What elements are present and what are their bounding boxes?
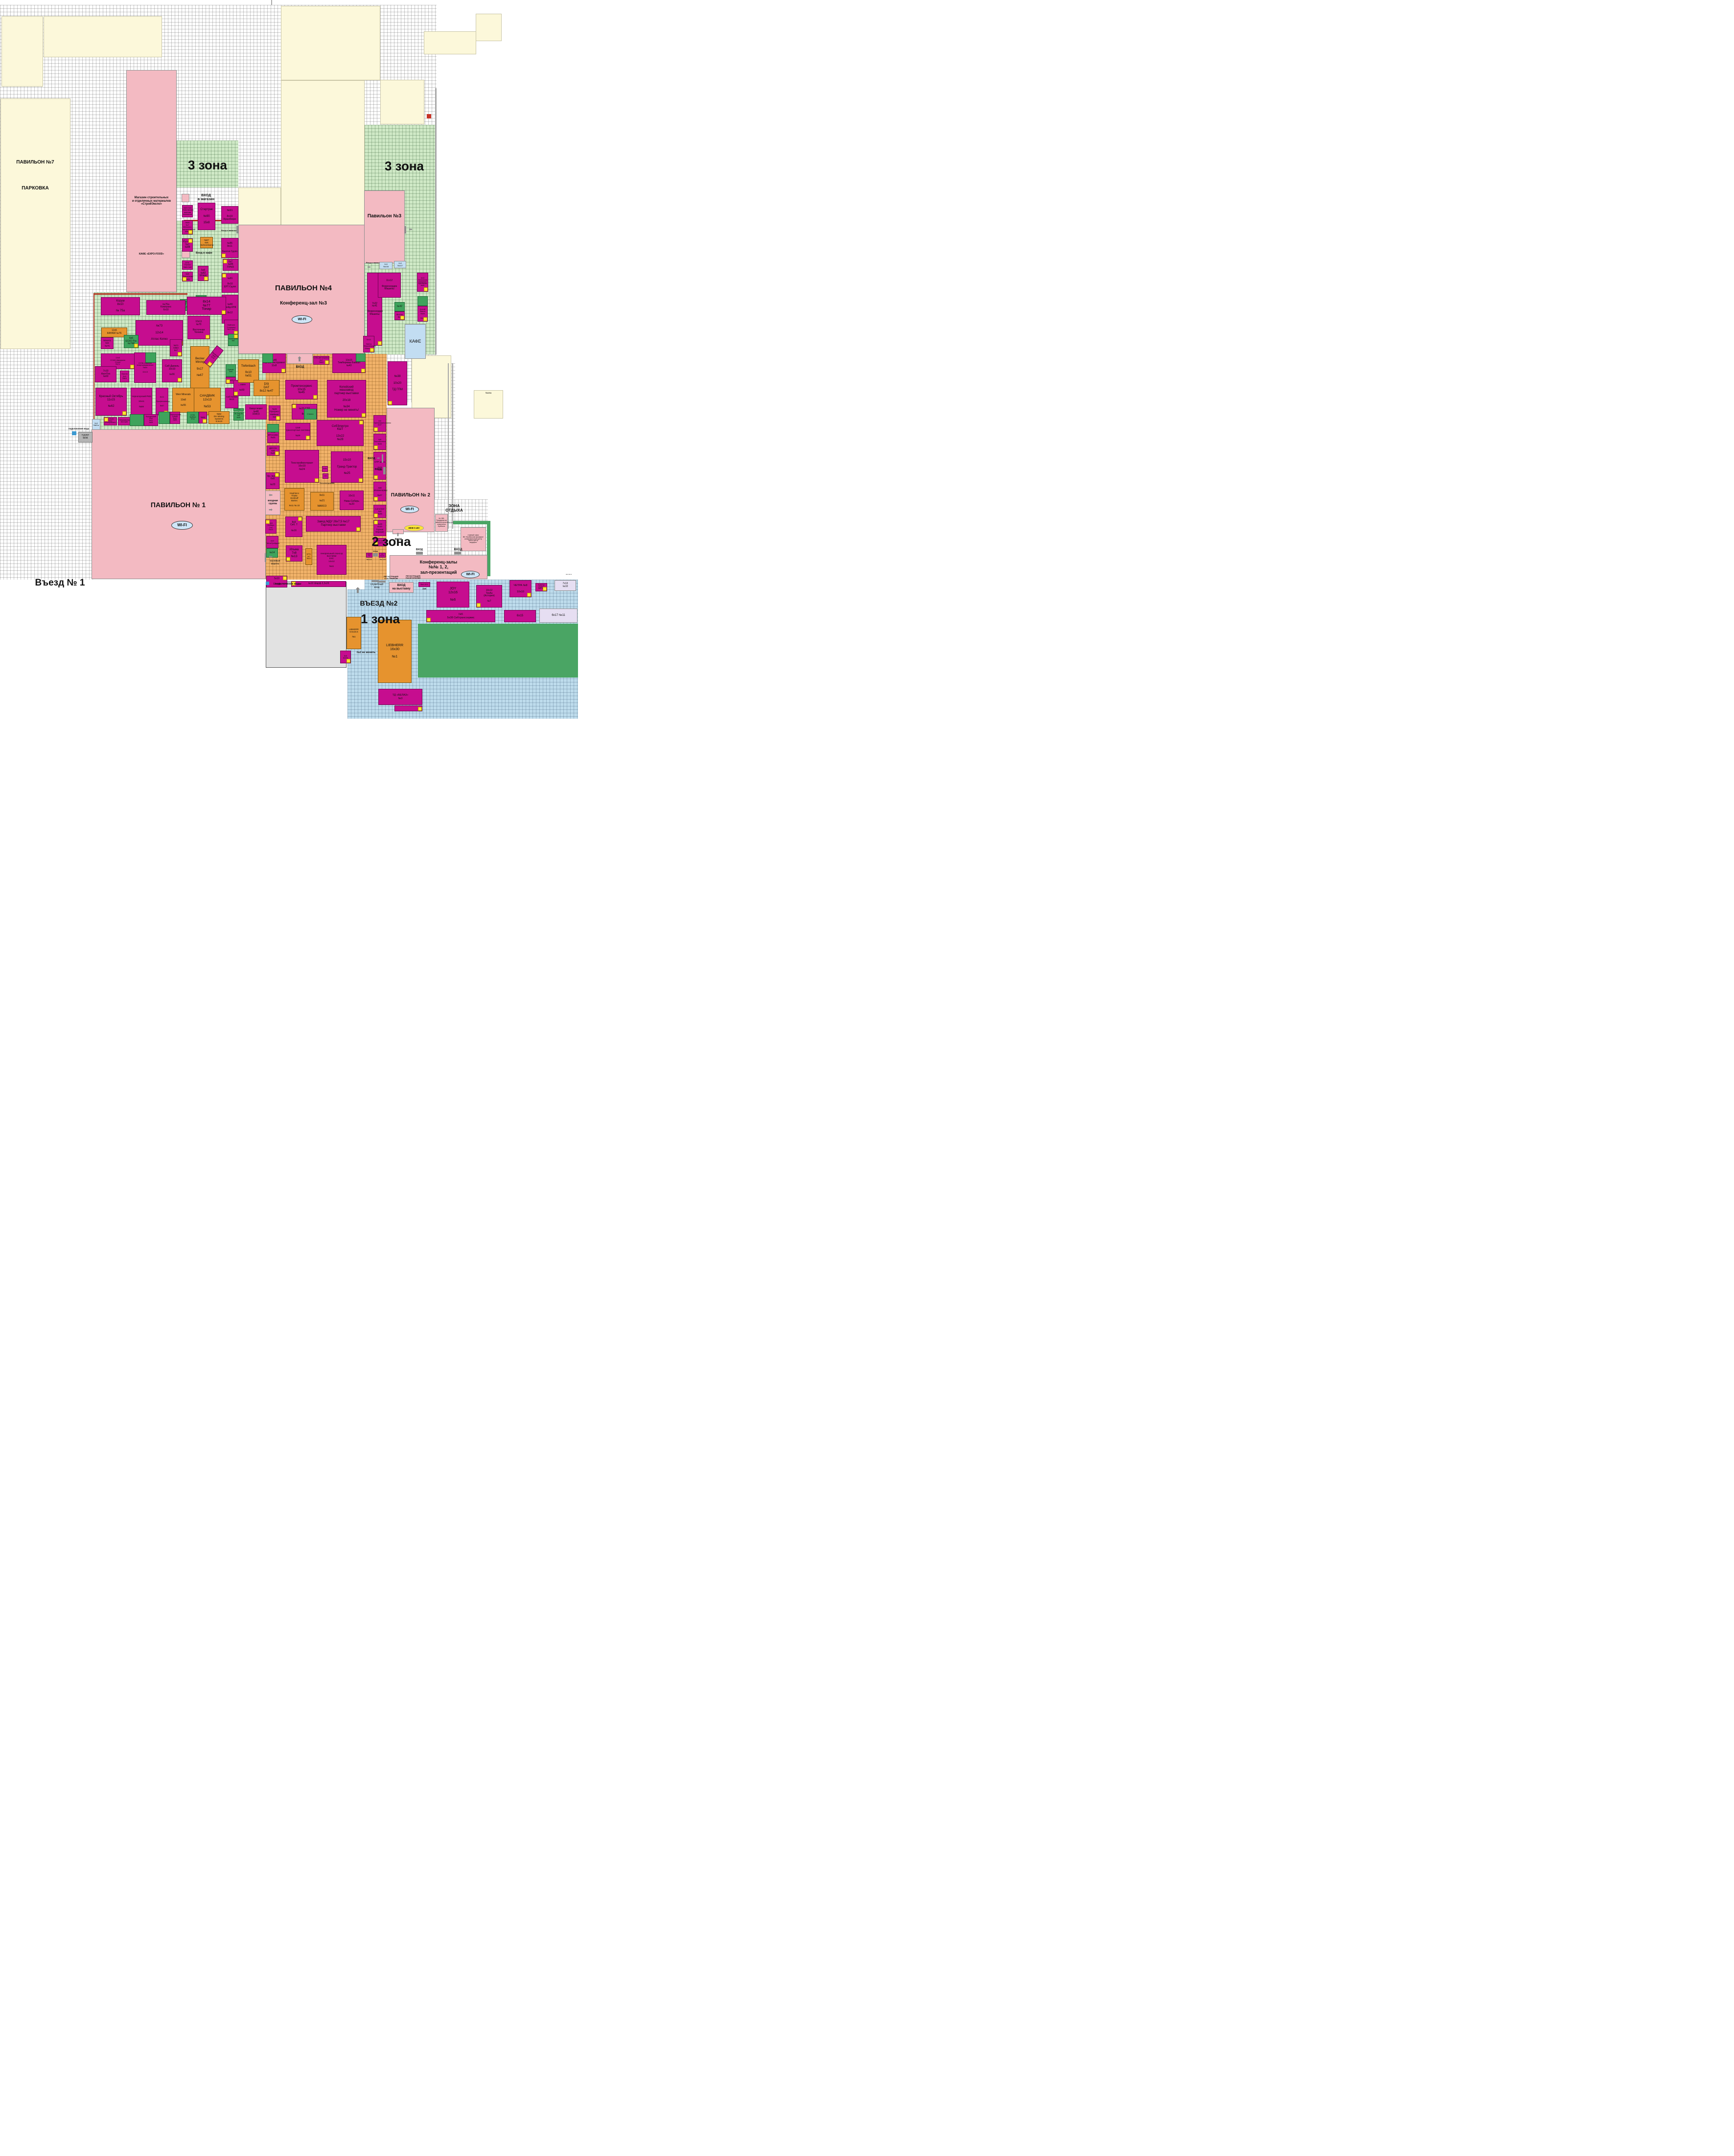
booth-48: Химуглемет №48 10x8,5	[245, 404, 267, 420]
tick-top	[271, 0, 272, 5]
booth-belaz-strip	[394, 705, 422, 711]
booth-84: АГМ-Сервис №84 5x5	[182, 260, 193, 270]
arrow-gruzovye: ⬅	[266, 554, 275, 559]
label-pavilion7: ПАВИЛЬОН №7	[9, 159, 62, 166]
booth-58: Бородинский РМЗ 5x11 №58	[144, 414, 158, 426]
booth-33-steklo: Стекло	[304, 409, 317, 420]
booth-6x15: 6x15	[504, 610, 536, 622]
booth-28: СибЭлектро КШТ 13x22 №28	[317, 420, 364, 446]
booth-42: Фотон 5x8	[394, 311, 405, 320]
booth-24a: №24а	[322, 466, 328, 472]
booth-17: Завод МДУ 26x7,5 №17 Партнер выставки	[306, 516, 361, 532]
booth-11: генеральный спонсор выставки ЕХС 14x12 №…	[317, 545, 347, 575]
label-vhod-pav2w: ВХОД	[373, 468, 384, 471]
booth-5: №5 5x38 Сибтранссервис	[426, 610, 495, 622]
booth-74a: 6x6 ЕСКО Рус №74А	[124, 335, 139, 348]
label-vezd1: Въезд № 1	[24, 577, 95, 589]
booth-87: №87 6x6 Bohnenkamp	[200, 237, 213, 248]
cream-left-pav4	[238, 187, 281, 225]
main-office: главный офис ВК «Кузбасская ярмарка» коп…	[461, 527, 486, 551]
booth-6: JOY 12x16 №6	[437, 582, 469, 608]
green-bar-h	[453, 521, 490, 524]
booth-91: №91 8x10 Кранбюро	[221, 206, 238, 224]
booth-58-green	[130, 414, 144, 426]
booth-46-green	[262, 353, 273, 363]
arrow-pav3-bottom: ⬅	[365, 265, 373, 269]
booth-41a: 5x10 №41а Ферронордик Машины	[363, 336, 374, 352]
booth-63: 7x10 АзотТех №63	[95, 366, 116, 382]
label-zone3-left: 3 зона	[180, 157, 235, 174]
label-vezd2: ВЪЕЗД №2	[349, 599, 408, 608]
booth-75: Макита 5x5 №75	[101, 337, 114, 349]
red-square	[427, 114, 431, 118]
cafe-east: КАФЕ	[405, 324, 426, 359]
booth-21: 9x11 №21 MARCO	[310, 492, 334, 511]
booth-72: Майнинг Солюшнс №72 6x7	[224, 320, 238, 335]
pavilion3	[364, 190, 405, 263]
cream-right-1	[380, 80, 424, 124]
booth-14: 6x9 МегаТрейдинг	[266, 536, 278, 548]
label-conf3: Конференц-зал №3	[259, 300, 347, 306]
wifi-pav2: WI-FI	[400, 506, 419, 513]
booth-65-green	[145, 352, 156, 363]
booth-64: Лиотех 4x4 №64	[120, 371, 129, 382]
label-2x6: 2x6	[418, 587, 430, 590]
pavilion7	[0, 98, 70, 349]
dots: • • • •	[559, 574, 578, 577]
power-380v: 380В 5 кВт	[404, 525, 424, 531]
booth-56-green	[159, 412, 170, 424]
booth-37: 4x6 Орелкомпрессормаш №37	[373, 415, 386, 432]
booth-66: Сиб-Дамель 10x10 №66	[162, 359, 182, 382]
label-vhod-asi: вход	[372, 550, 379, 553]
booth-88: Русторг 5x7 №88	[182, 238, 193, 252]
booth-shina-2: 5x6 Шина	[340, 651, 351, 663]
label-gruzovye: грузовые ворота	[267, 560, 283, 566]
booth-8: ЧЕТРА №8 10x10	[509, 580, 532, 597]
booth-81: №81 8x10 ЕРТ-Групп	[222, 273, 238, 293]
cream-top-center	[281, 6, 380, 80]
booth-49-strip: 1,5x3	[233, 408, 244, 411]
booth-76a: №76а Комтранс 6x10	[146, 300, 185, 315]
redline-v	[93, 293, 94, 430]
booth-82: 5x8 №82 Штарк	[198, 266, 208, 281]
booth-85: 6x7 №85 ПРМЗ	[223, 259, 238, 271]
label-vhod-rest1: ВХОД	[414, 548, 425, 552]
door-sluzhebny	[377, 581, 386, 583]
booth-31-green	[267, 424, 279, 432]
label-16a: №16а	[474, 392, 503, 395]
label-vhod-shop: ВХОД в магазин	[191, 193, 221, 202]
booth-13: Ильма 7x8 №13	[286, 545, 302, 562]
door-asi	[373, 553, 378, 557]
redline-h	[94, 293, 187, 295]
booth-12: MTU 3x7 №12	[305, 548, 312, 565]
label-expo-food: КАФЕ «EXPO-FOOD»	[127, 253, 176, 257]
booth-asi: АСИ 3x2	[366, 553, 372, 558]
arrow-vhod-pav2s: ⬆	[394, 532, 401, 538]
booth-29: 12x8 транспортные системы №29	[285, 423, 310, 440]
booth-45: Промтехсервис 10x15 №45	[285, 380, 318, 399]
wifi-conf: WI-FI	[461, 571, 480, 578]
bsq-voda	[72, 431, 76, 435]
booth-40: 4x10 Технологии Анкерного Крепления №40	[417, 273, 428, 292]
booth-26: Сателлит 4x8 №26	[373, 505, 386, 518]
arrow-entrance-group-right: ➡	[266, 507, 275, 512]
booth-belaz: ТД «БЕЛАЗ» №3	[378, 689, 422, 705]
booth-granit: Гранит 5x8	[226, 364, 236, 377]
booth-4-joy: №4 JOY	[418, 582, 430, 587]
label-reg-uchastnikov: РЕГИСТРАЦИЯ УЧАСТНИКОВ	[381, 575, 401, 581]
booth-107: 2x3 №107	[394, 261, 406, 268]
booth-39-green	[417, 296, 428, 306]
booth-spgroup: СП Групп	[379, 553, 386, 558]
booth-59: Черногорский РМЗ 10x11 №59	[131, 388, 152, 415]
booth-42-green: №42	[394, 302, 405, 311]
label-vhod-pav2s: ВХОД	[393, 538, 403, 541]
booth-93: №93 5x5 Поволжская шинная компания	[182, 205, 193, 217]
label-pavilion3: Павильон №3	[365, 213, 404, 219]
wifi-pav1: WI-FI	[171, 521, 193, 530]
booth-67: Becker Mining 9x17 №67	[190, 346, 209, 389]
label-pavilion4: ПАВИЛЬОН №4	[259, 284, 347, 293]
booth-38: №38 10x20 ТД ГПМ	[388, 361, 407, 405]
booth-10-lav: 7x13 №10	[555, 580, 576, 591]
booth-71: №71 АКВА 6x7	[170, 339, 182, 356]
booth-62: Красный Октябрь 11x15 №62	[95, 388, 127, 416]
bsq-vody	[266, 582, 269, 585]
label-pavilion2: ПАВИЛЬОН № 2	[388, 492, 434, 498]
booth-60: Петромастер 5x3 №60	[118, 417, 131, 425]
booth-55: Weir Minerals 10x8 №55	[172, 388, 194, 413]
label-stroyexpo: Магазин строительных и отделочных матери…	[127, 194, 176, 209]
door-shop	[182, 194, 189, 202]
stroyexpo	[126, 70, 177, 292]
booth-56: Черногорские ЦЭММ 6x10 №56	[170, 412, 180, 424]
booth-32: №32 Прогресс Майнинг 5x8	[269, 405, 280, 421]
booth-47: DSI DAT 8x12 №47	[254, 380, 279, 396]
label-zone2: 2 зона	[356, 534, 427, 550]
green-bar-v	[487, 524, 490, 576]
booth-54: №54	[199, 412, 207, 423]
label-rest-area: ЗОНА ОТДЫХА	[439, 503, 470, 514]
booth-89: №89 5x7 Металло- механический завод	[182, 220, 193, 234]
booth-54-green: СУЭК-Кузбасс 5*10	[187, 412, 199, 423]
cream-right-2	[424, 31, 476, 54]
booth-22: Hauhinco Thiele Eickhoff Bartec 9x11 № 2…	[284, 488, 304, 511]
booth-108: 2x3 №108	[379, 262, 393, 269]
label-parkovka: ПАРКОВКА	[9, 185, 62, 192]
booth-24: Техстройконтракт 16x10 №24	[285, 450, 319, 483]
booth-20: 10x11 Нива-Сибирь №20	[340, 491, 364, 510]
label-sluzhebny: служебный вход	[367, 583, 387, 589]
floorplan: №16аКонференц-залы №№ 1, 2, зал-презента…	[0, 0, 578, 719]
booth-35: ОТР шина 4x11 №35	[373, 452, 386, 480]
booth-51: Tiefenbach 9x10 №51	[238, 359, 259, 383]
label-no2: №2 не менять	[351, 651, 381, 655]
service-gray-block	[266, 582, 347, 668]
booth-27: 4x8 Инкомсервис №27	[373, 482, 386, 501]
booth-77: 8x14 №77 Тонар	[187, 297, 226, 315]
door-vhod-east	[382, 454, 383, 463]
label-11a: №11А	[364, 559, 374, 561]
booth-70: 10x11 №70 Восточная Техника	[187, 316, 210, 339]
label-podkl-vody: подключение воды	[270, 582, 307, 586]
arrow-vezd2: ⬆	[354, 586, 361, 596]
cream-1	[1, 16, 43, 87]
booth-ferronordik-11x12: 11x12 Ферронордик Машины	[378, 273, 401, 298]
wifi-pav4: WI-FI	[292, 315, 312, 324]
booth-liebherr: LIEBHERR 16x30 №1	[378, 620, 412, 683]
label-zone1: 1 зона	[348, 611, 412, 628]
booth-75a: Корум 8x10 № 75а	[101, 297, 140, 315]
booth-36: 4x6 ТехноКолесо №36	[373, 434, 386, 450]
booth-24b: 2x4	[323, 473, 328, 479]
booth-52: №52 DH Mining Systems 5,5x10	[208, 411, 230, 424]
label-11b: № 11Б	[378, 559, 388, 561]
wall-right-upper	[435, 88, 437, 354]
label-vhod-rest2: ВХОД	[452, 548, 464, 552]
label-podkl-voda: подключение вода	[64, 427, 94, 430]
green-field	[418, 624, 578, 678]
arrow-entrance-group-left: ⬅	[266, 492, 275, 497]
booth-15: ЧКЗ Сибирь 2x6 №15	[265, 519, 277, 534]
pavilion2	[387, 408, 435, 532]
booth-49: Эс Энд Эн 5x5 №49	[233, 412, 244, 421]
door-gruzovye	[265, 553, 266, 562]
label-vhod-pav4: ВХОД	[293, 365, 307, 369]
arrow-vhod-east: ➡	[375, 457, 382, 461]
booth-16: 8x9 Сиб. Т №16	[285, 516, 302, 537]
arrow-vhod-pav4: ⬆	[295, 354, 304, 364]
booth-61: 2x3 №61 Интр (Интерлизинг)	[104, 417, 117, 425]
booth-23: Кр. якорь 6x8 №23	[266, 472, 279, 489]
booth-57: 6x11 Профессионал №57	[156, 388, 168, 415]
label-tatelektromash: Татэлектромаш	[313, 482, 341, 485]
label-pavilion1: ПАВИЛЬОН № 1	[133, 501, 223, 509]
door-vhod-rest1	[416, 552, 423, 555]
booth-44: СПК-автосервис 5x7 №44	[313, 356, 329, 365]
booth-83: 5x5 Трансмаш №83	[182, 272, 193, 281]
booth-11-lav: 6x17 №11	[539, 609, 578, 623]
booth-90: Стартрак №90 15x8	[198, 203, 215, 230]
door-pav3	[404, 226, 406, 234]
label-zone3-right: 3 зона	[378, 159, 431, 174]
cream-2	[44, 16, 162, 57]
cream-right-3	[476, 14, 502, 41]
booth-promservis: Промсервис 5x5	[228, 334, 238, 346]
booth-18a: № 18А Предприятия машиностроительного ко…	[435, 514, 448, 532]
door-pav4-left	[236, 226, 239, 234]
booth-25: 15x10 Гранд-Трактор №25	[331, 451, 363, 483]
arrow-pav3-right: ⬅	[407, 228, 414, 232]
booth-9: Трактор Сервис 5x5 №9	[535, 583, 547, 591]
booth-86: №86 8x11 Биотоп Групп	[221, 238, 238, 258]
booth-43-green	[356, 353, 366, 362]
booth-7: 10x12 ТехАз (Астория) №7	[476, 585, 502, 608]
label-vhod-cafe: Вход в кафе	[191, 251, 217, 256]
toilet: туалет М/Ж	[78, 432, 92, 443]
cream-mid-center	[281, 80, 365, 225]
booth-39: Алтай Вагон №39 5x11	[417, 306, 428, 322]
door-vhod-rest2	[454, 552, 461, 555]
booth-30: ДИСОН 5x6 №30	[267, 445, 279, 456]
door-vhod-pav2w	[383, 467, 386, 474]
booth-34: Копейский машзавод партнер выставки 20x1…	[327, 380, 366, 418]
label-reg-posetiteley: РЕГИСТРАЦИЯ ПОСЕТИТЕЛЕЙ	[402, 574, 424, 580]
entrance-expo-block: ВХОД на выставку	[389, 582, 414, 593]
